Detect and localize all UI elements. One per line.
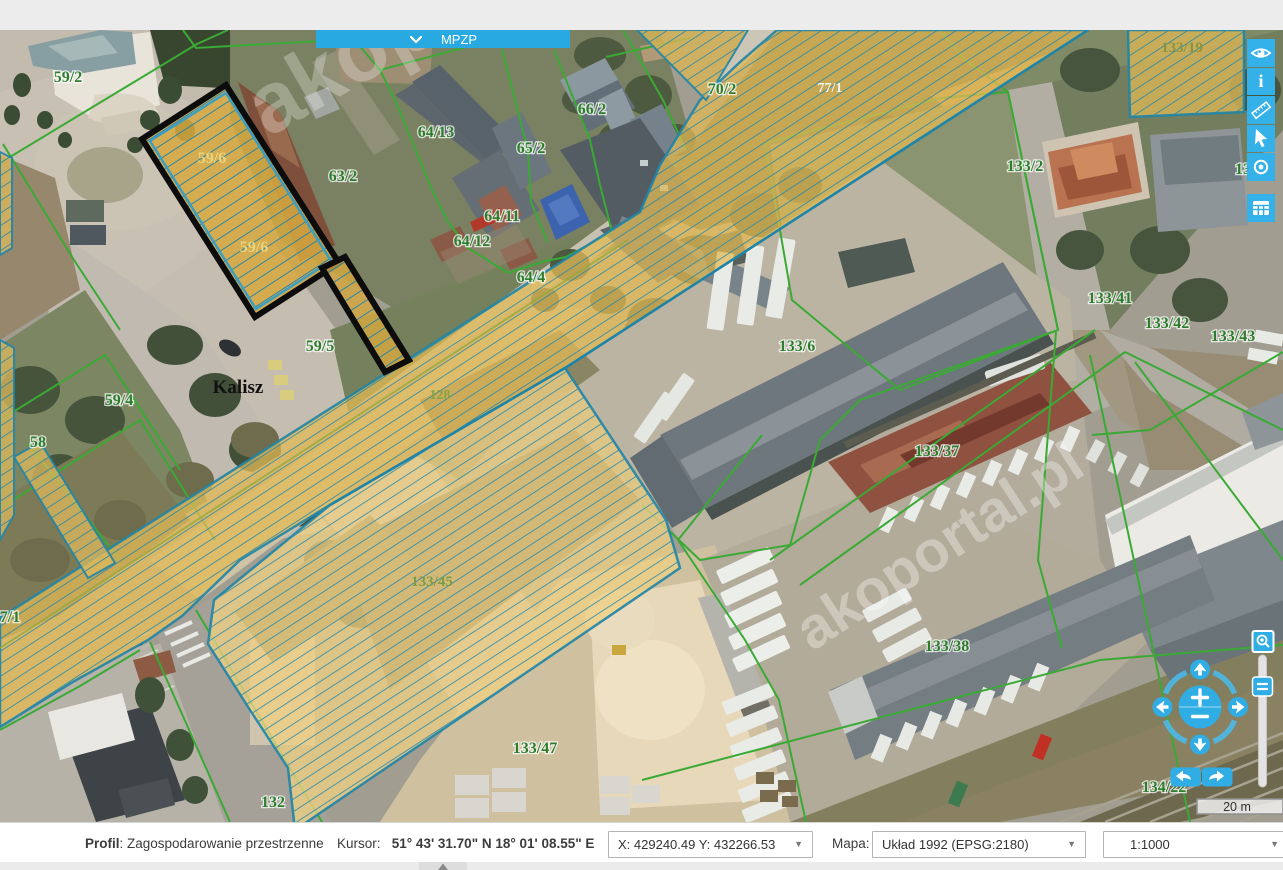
svg-text:20 m: 20 m <box>1223 800 1251 814</box>
svg-text:Kalisz: Kalisz <box>213 377 264 398</box>
svg-text:133/41: 133/41 <box>1088 290 1132 307</box>
svg-text:63/2: 63/2 <box>329 168 357 185</box>
svg-text:133/45: 133/45 <box>411 574 453 590</box>
svg-text:64/4: 64/4 <box>517 269 545 286</box>
svg-text:59/6: 59/6 <box>240 239 268 256</box>
svg-text:133/19: 133/19 <box>1161 40 1203 56</box>
svg-text:58: 58 <box>30 434 46 451</box>
svg-text:66/2: 66/2 <box>578 101 606 118</box>
svg-text:77/1: 77/1 <box>818 81 843 96</box>
svg-text:59/2: 59/2 <box>54 69 82 86</box>
svg-text:132: 132 <box>261 794 285 811</box>
svg-text:64/13: 64/13 <box>418 124 454 141</box>
svg-text:i: i <box>1258 71 1263 91</box>
svg-text:133/42: 133/42 <box>1145 315 1189 332</box>
svg-text:133/37: 133/37 <box>915 443 959 460</box>
svg-text:64/11: 64/11 <box>484 208 520 225</box>
svg-text:64/12: 64/12 <box>454 233 490 250</box>
svg-text:59/4: 59/4 <box>105 392 133 409</box>
svg-text:133/43: 133/43 <box>1211 328 1255 345</box>
svg-text:59/6: 59/6 <box>198 150 226 167</box>
svg-text:133/47: 133/47 <box>513 740 557 757</box>
svg-text:133/6: 133/6 <box>779 338 815 355</box>
svg-text:7/1: 7/1 <box>0 609 20 626</box>
svg-text:65/2: 65/2 <box>517 140 545 157</box>
svg-text:59/5: 59/5 <box>306 338 334 355</box>
svg-text:70/2: 70/2 <box>708 81 736 98</box>
svg-text:133/38: 133/38 <box>925 638 969 655</box>
svg-text:133/2: 133/2 <box>1007 158 1043 175</box>
svg-text:128: 128 <box>430 388 451 403</box>
